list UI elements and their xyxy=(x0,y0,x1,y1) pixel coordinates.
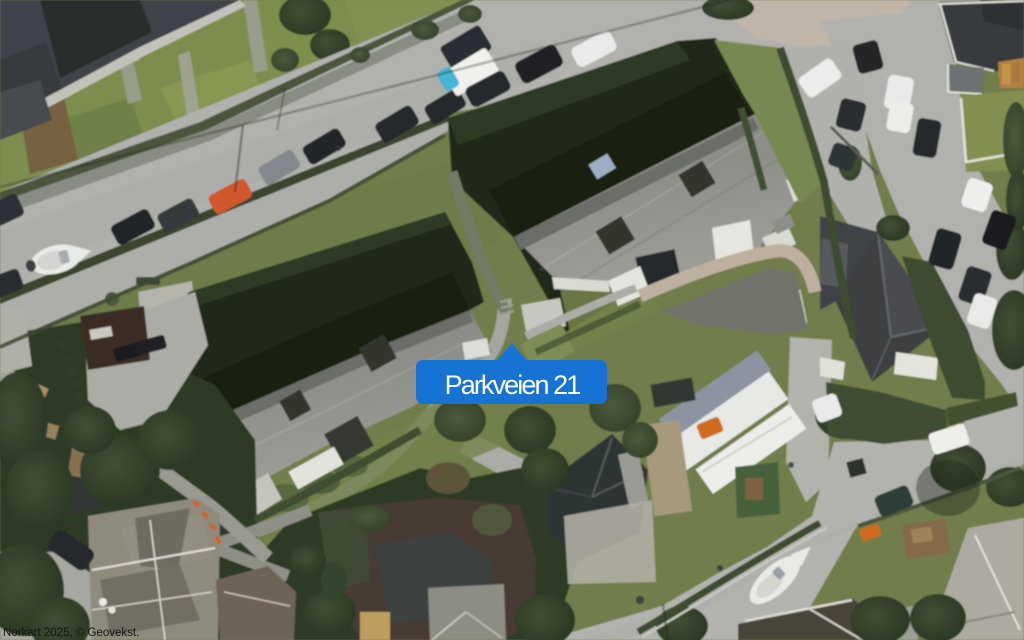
svg-text:Norkart 2025, © Geovekst.: Norkart 2025, © Geovekst. xyxy=(3,627,139,639)
svg-text:Parkveien 21: Parkveien 21 xyxy=(445,370,581,400)
